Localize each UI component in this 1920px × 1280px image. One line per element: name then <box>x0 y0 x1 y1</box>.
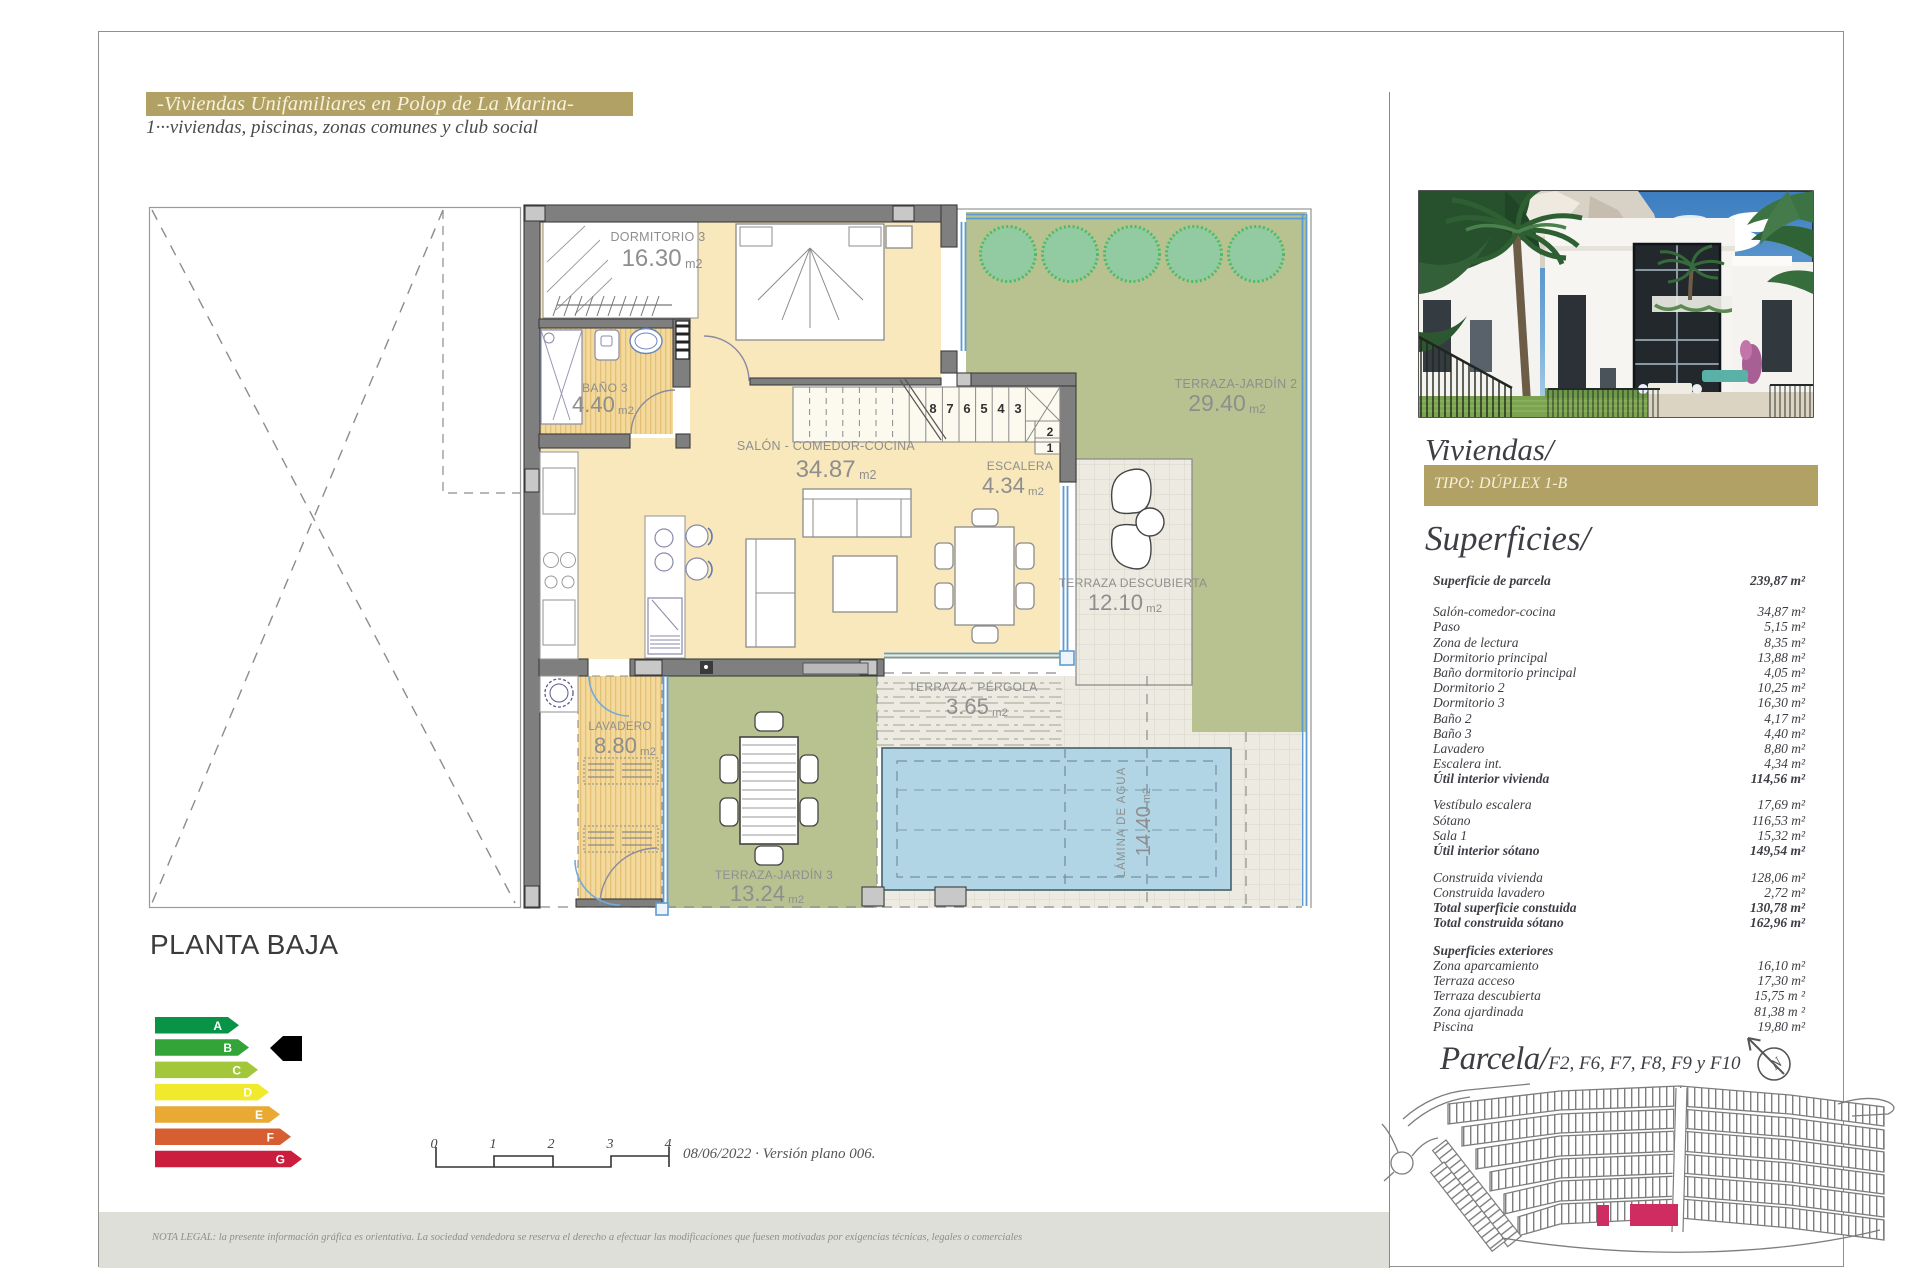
svg-text:LÁMINA DE AGUA: LÁMINA DE AGUA <box>1115 767 1128 878</box>
svg-text:5: 5 <box>980 401 987 416</box>
svg-text:3: 3 <box>1014 401 1021 416</box>
svg-text:F: F <box>267 1130 274 1144</box>
svg-text:1: 1 <box>490 1137 497 1152</box>
svg-text:0: 0 <box>431 1137 438 1152</box>
svg-text:A: A <box>213 1019 222 1033</box>
svg-text:TERRAZA - PÉRGOLA: TERRAZA - PÉRGOLA <box>908 679 1037 694</box>
svg-text:4: 4 <box>997 401 1005 416</box>
svg-text:C: C <box>232 1063 241 1077</box>
svg-text:7: 7 <box>946 401 953 416</box>
svg-text:G: G <box>276 1153 285 1167</box>
svg-text:TERRAZA DESCUBIERTA: TERRAZA DESCUBIERTA <box>1059 576 1208 590</box>
svg-text:TERRAZA-JARDÍN 3: TERRAZA-JARDÍN 3 <box>715 867 833 882</box>
svg-text:N: N <box>1767 1054 1786 1074</box>
svg-text:B: B <box>223 1041 232 1055</box>
svg-text:4: 4 <box>665 1137 672 1152</box>
svg-text:2: 2 <box>1047 425 1054 439</box>
svg-text:TERRAZA-JARDÍN 2: TERRAZA-JARDÍN 2 <box>1175 376 1298 391</box>
svg-text:8: 8 <box>929 401 936 416</box>
svg-text:3: 3 <box>606 1137 614 1152</box>
svg-text:LAVADERO: LAVADERO <box>588 721 651 733</box>
svg-text:DORMITORIO 3: DORMITORIO 3 <box>610 230 705 244</box>
svg-text:6: 6 <box>963 401 970 416</box>
svg-text:SALÓN - COMEDOR-COCINA: SALÓN - COMEDOR-COCINA <box>737 438 916 453</box>
svg-text:D: D <box>243 1086 252 1100</box>
svg-text:ESCALERA: ESCALERA <box>987 459 1053 473</box>
svg-text:1: 1 <box>1047 441 1054 455</box>
svg-text:E: E <box>255 1108 263 1122</box>
svg-text:2: 2 <box>548 1137 555 1152</box>
